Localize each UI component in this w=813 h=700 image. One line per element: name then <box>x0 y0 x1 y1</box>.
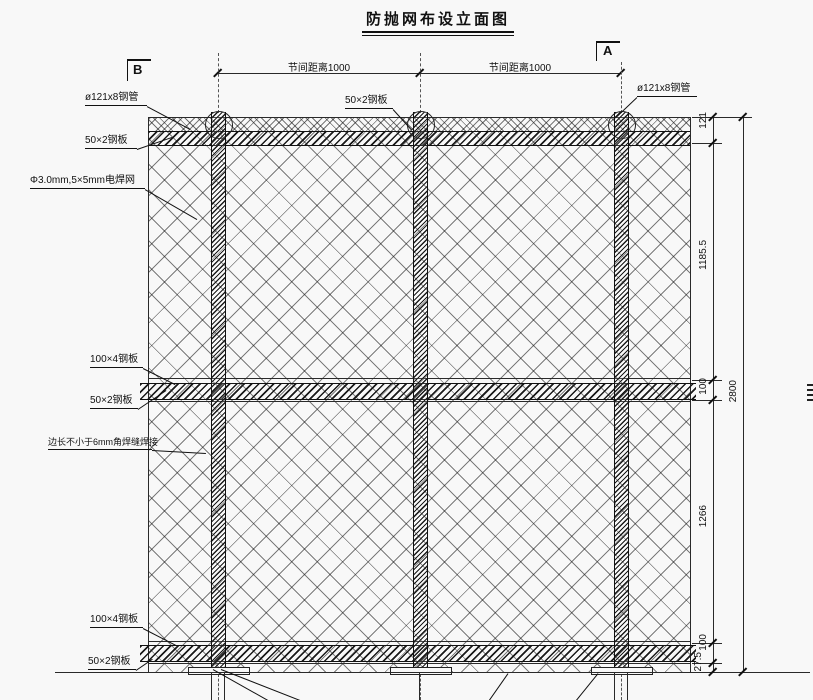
callout-text: ø121x8钢管 <box>637 83 690 94</box>
callout-text: 100×4钢板 <box>90 614 138 625</box>
steel-post <box>211 112 226 668</box>
post-centerline <box>218 674 219 700</box>
steel-post <box>614 112 629 668</box>
base-plate <box>591 667 653 675</box>
steel-post <box>413 112 428 668</box>
clipped-text-right-edge <box>807 383 813 401</box>
callout-text: 边长不小于6mm角焊缝焊接 <box>48 437 158 447</box>
dim-1266: 1266 <box>698 505 709 527</box>
dim-1185-5: 1185.5 <box>698 240 709 270</box>
section-b-bracket-side <box>127 59 128 81</box>
bottom-leader-line <box>489 673 509 700</box>
callout-fillet-weld: 边长不小于6mm角焊缝焊接 <box>48 436 152 450</box>
callout-plate-bottom-1: 100×4钢板 <box>90 614 143 628</box>
callout-plate-mid-1: 100×4钢板 <box>90 354 143 368</box>
post-below-ground-line <box>614 673 615 700</box>
inner-dimension-line <box>713 117 714 672</box>
span-dimension-left: 节间距离1000 <box>279 59 359 74</box>
callout-text: ø121x8钢管 <box>85 92 138 103</box>
callout-plate-top-left: 50×2钢板 <box>85 135 137 149</box>
drawing-canvas: 防抛网布设立面图 B A 节间距离1000 节间距离1000 <box>0 0 813 700</box>
section-marker-b: B <box>133 62 142 77</box>
callout-text: 100×4钢板 <box>90 354 138 365</box>
post-centerline <box>420 53 421 113</box>
post-centerline <box>621 674 622 700</box>
dim-extension-line <box>692 400 722 401</box>
dim-121: 121 <box>698 112 709 129</box>
callout-welded-mesh: Φ3.0mm,5×5mm电焊网 <box>30 175 145 189</box>
callout-text: 50×2钢板 <box>88 656 131 667</box>
callout-text: Φ3.0mm,5×5mm电焊网 <box>30 175 135 186</box>
callout-text: 50×2钢板 <box>90 395 133 406</box>
ground-line <box>55 672 810 673</box>
dim-extension-line <box>692 143 722 144</box>
section-a-bracket-side <box>596 41 597 61</box>
title-underline-2 <box>362 35 514 36</box>
post-centerline <box>218 53 219 113</box>
callout-pipe-top-left: ø121x8钢管 <box>85 92 147 106</box>
dim-100-upper: 100 <box>698 378 709 395</box>
dim-27-5: 27.5 <box>693 652 704 671</box>
post-centerline <box>621 62 622 113</box>
dim-100-lower: 100 <box>698 634 709 651</box>
span-dimension-right: 节间距离1000 <box>480 59 560 74</box>
callout-plate-mid-2: 50×2钢板 <box>90 395 138 409</box>
callout-plate-top-center: 50×2钢板 <box>345 95 393 109</box>
title-underline-1 <box>362 31 514 33</box>
post-below-ground-line <box>211 673 212 700</box>
drawing-title: 防抛网布设立面图 <box>360 8 516 29</box>
section-b-bracket-top <box>127 59 151 61</box>
base-plate <box>390 667 452 675</box>
callout-pipe-top-right: ø121x8钢管 <box>637 83 697 97</box>
bottom-leader-line <box>576 673 599 700</box>
callout-text: 50×2钢板 <box>345 95 388 106</box>
callout-plate-bottom-2: 50×2钢板 <box>88 656 136 670</box>
section-marker-a: A <box>603 43 612 58</box>
post-below-ground-line <box>419 673 420 700</box>
post-below-ground-line <box>627 673 628 700</box>
outer-dimension-line <box>743 117 744 672</box>
callout-text: 50×2钢板 <box>85 135 128 146</box>
dim-2800-overall: 2800 <box>728 380 739 402</box>
